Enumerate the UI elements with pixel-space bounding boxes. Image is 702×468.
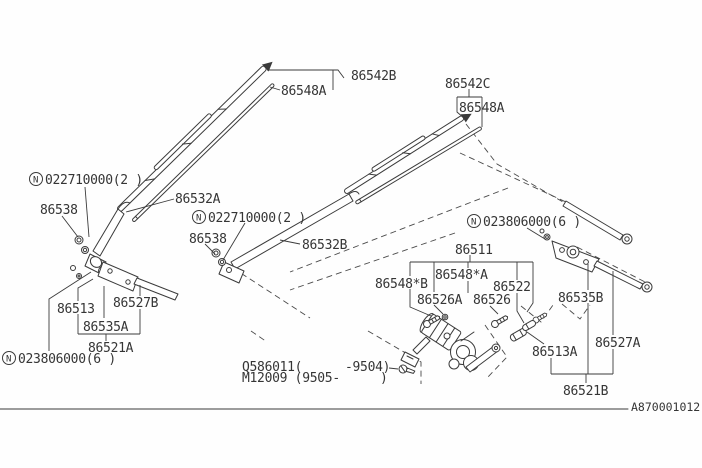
joint-cylinder-2 [522, 319, 537, 331]
part-label-86521b: 86521B [563, 384, 609, 399]
part-label-86548-star-b: 86548*B [375, 277, 428, 292]
part-label-86548-star-a: 86548*A [435, 268, 488, 283]
part-label-86535a: 86535A [83, 320, 129, 335]
diagram-canvas: N 022710000(2 ) N 022710000(2 ) N 023806… [0, 0, 702, 468]
svg-text:N: N [6, 355, 11, 365]
diagram-footer: A870001012 [0, 400, 700, 414]
svg-text:N: N [196, 214, 201, 224]
svg-text:022710000(2 ): 022710000(2 ) [208, 211, 306, 226]
motor-code-m12009: M12009 (9505- [242, 371, 340, 386]
wiper-motor [401, 312, 500, 372]
svg-text:N: N [471, 218, 476, 228]
part-label-86542b: 86542B [351, 69, 397, 84]
part-label-86526a: 86526A [417, 293, 463, 308]
part-label-nut-022710000-1: N 022710000(2 ) [30, 173, 143, 189]
parts-diagram-wiper-system: N 022710000(2 ) N 022710000(2 ) N 023806… [0, 0, 702, 468]
motor-code-m12009-range: ) [380, 371, 388, 386]
bolt-86526-target [490, 314, 509, 329]
part-label-86538-1: 86538 [40, 203, 78, 218]
part-label-86521a: 86521A [88, 341, 134, 356]
part-labels: N 022710000(2 ) N 022710000(2 ) N 023806… [3, 69, 641, 399]
svg-text:023806000(6 ): 023806000(6 ) [483, 215, 581, 230]
svg-text:N: N [33, 176, 38, 186]
part-label-86513: 86513 [57, 302, 95, 317]
part-label-86538-2: 86538 [189, 232, 227, 247]
part-label-nut-023806000-1: N 023806000(6 ) [468, 215, 581, 231]
part-label-86513a: 86513A [532, 345, 578, 360]
part-label-86548a-1: 86548A [281, 84, 327, 99]
part-label-86526: 86526 [473, 293, 511, 308]
linkage-rod-b [594, 261, 643, 289]
wiper-blade-2 [342, 108, 482, 204]
part-label-86542c: 86542C [445, 77, 490, 92]
pivot-assembly-left [71, 236, 179, 300]
part-label-86548a-2: 86548A [459, 101, 505, 116]
part-label-nut-022710000-2: N 022710000(2 ) [193, 211, 306, 227]
part-label-86527a: 86527A [595, 336, 641, 351]
part-label-86511: 86511 [455, 243, 493, 258]
figure-id: A870001012 [631, 400, 700, 414]
svg-text:022710000(2 ): 022710000(2 ) [45, 173, 143, 188]
part-label-86535b: 86535B [558, 291, 604, 306]
part-label-86532a: 86532A [175, 192, 221, 207]
part-label-86527b: 86527B [113, 296, 159, 311]
part-label-86532b: 86532B [302, 238, 348, 253]
